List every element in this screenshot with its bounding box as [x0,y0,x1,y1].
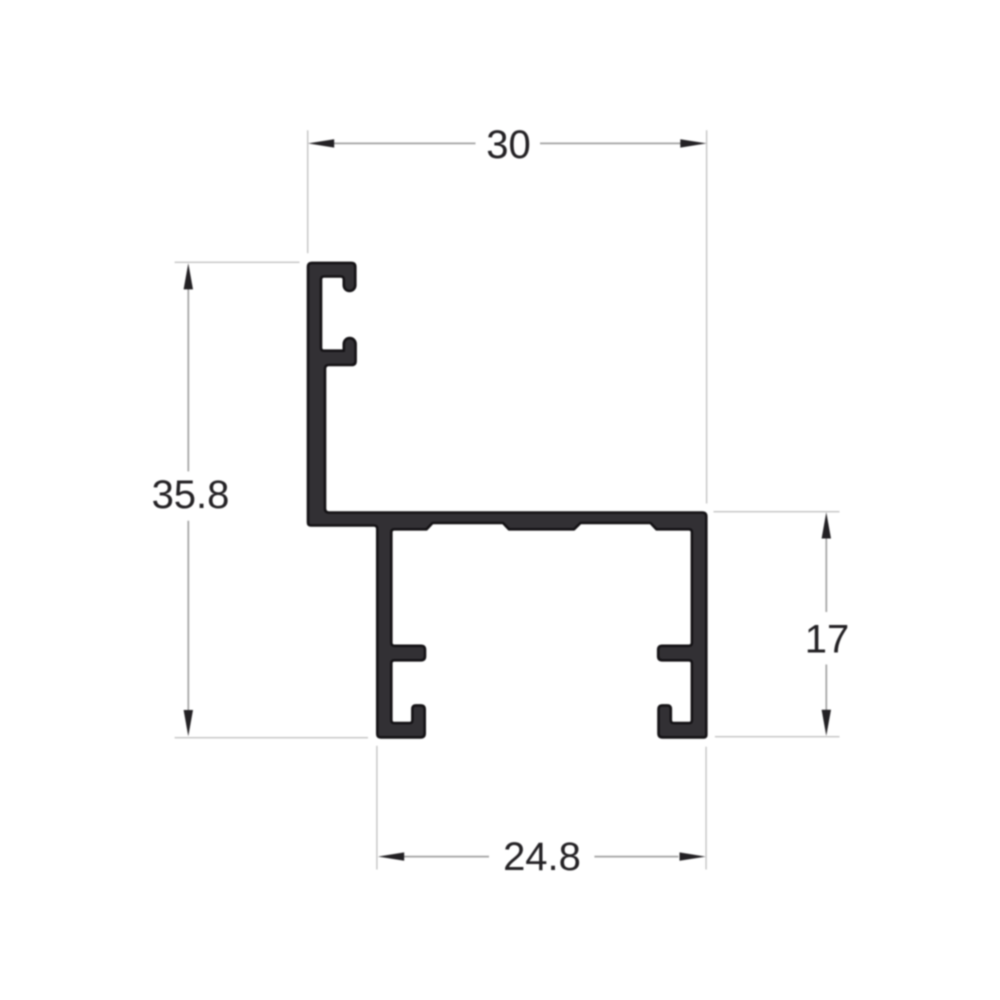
svg-text:24.8: 24.8 [503,835,581,879]
svg-text:30: 30 [486,123,531,167]
svg-text:17: 17 [805,618,850,662]
svg-text:35.8: 35.8 [152,473,230,517]
